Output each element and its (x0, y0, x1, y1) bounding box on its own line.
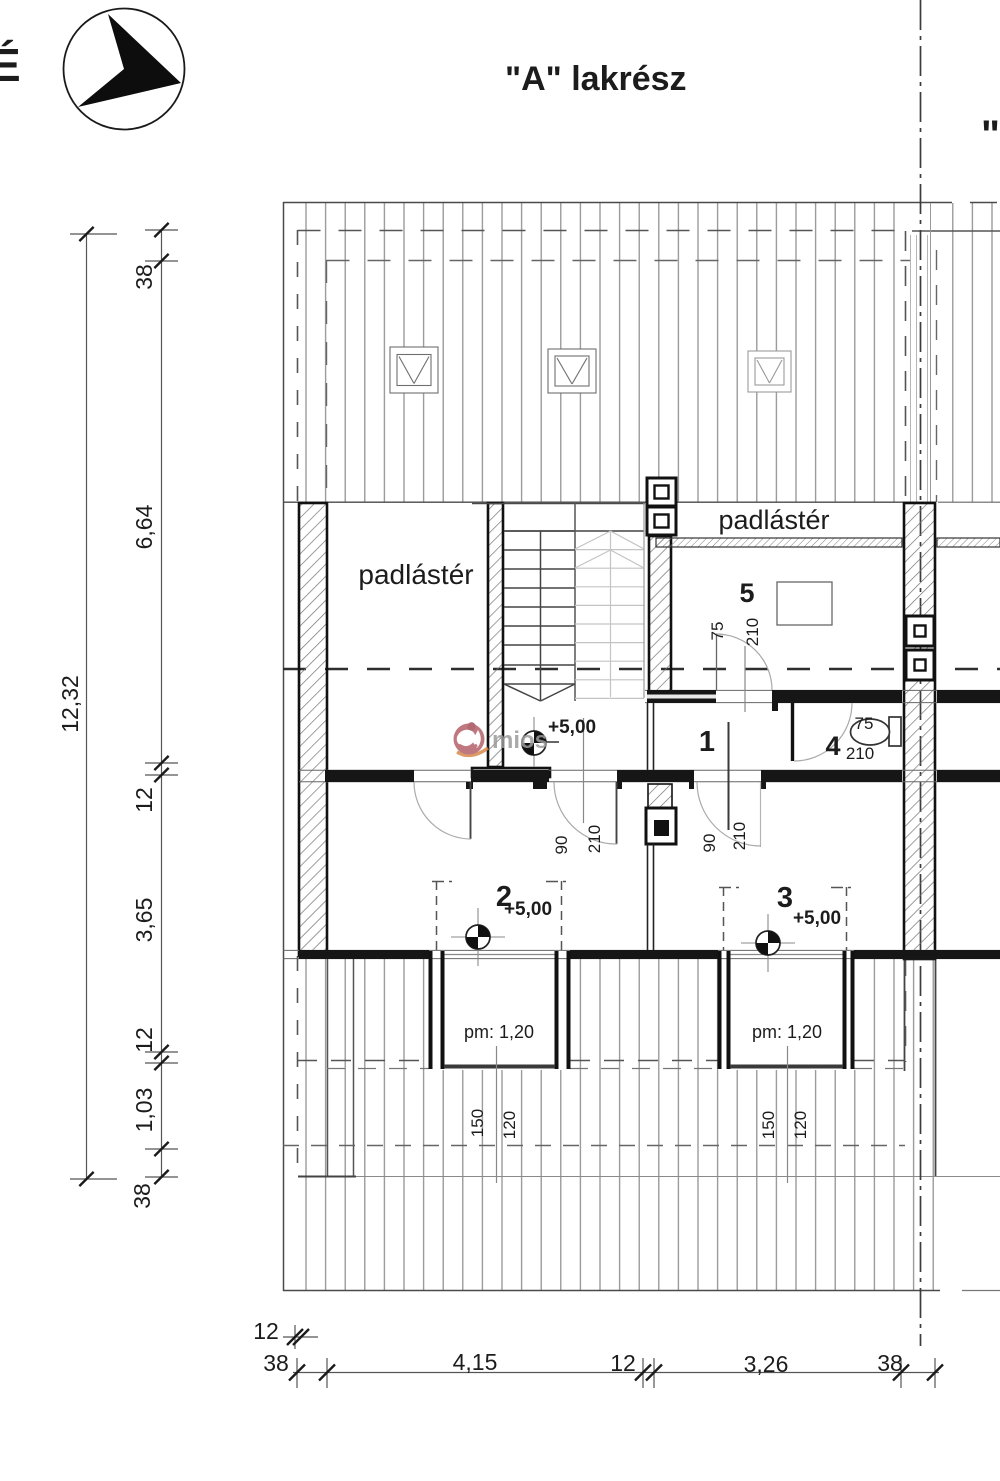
svg-text:3,26: 3,26 (744, 1351, 789, 1377)
svg-text:12: 12 (131, 1027, 157, 1053)
svg-text:75: 75 (708, 622, 727, 641)
svg-text:12: 12 (253, 1318, 279, 1344)
svg-text:38: 38 (263, 1350, 289, 1376)
svg-text:4,15: 4,15 (453, 1349, 498, 1375)
svg-text:pm: 1,20: pm: 1,20 (752, 1022, 822, 1042)
svg-text:1,03: 1,03 (131, 1088, 157, 1133)
svg-text:1: 1 (699, 726, 715, 758)
svg-text:+5,00: +5,00 (548, 717, 596, 738)
svg-text:5: 5 (739, 578, 754, 608)
svg-text:"A" lakrész: "A" lakrész (505, 60, 687, 98)
svg-text:": " (981, 113, 1000, 157)
svg-text:210: 210 (730, 822, 749, 850)
svg-text:12: 12 (610, 1350, 636, 1376)
svg-text:90: 90 (552, 836, 571, 855)
svg-text:12: 12 (131, 787, 157, 813)
svg-text:210: 210 (585, 825, 604, 853)
svg-text:90: 90 (700, 834, 719, 853)
svg-text:38: 38 (129, 1183, 155, 1209)
svg-text:+5,00: +5,00 (504, 899, 552, 920)
svg-text:pm: 1,20: pm: 1,20 (464, 1022, 534, 1042)
svg-text:padlástér: padlástér (358, 559, 473, 590)
svg-text:4: 4 (825, 731, 840, 761)
svg-text:210: 210 (846, 744, 874, 763)
svg-text:+5,00: +5,00 (793, 908, 841, 929)
svg-text:120: 120 (791, 1111, 810, 1139)
svg-text:padlástér: padlástér (718, 505, 829, 535)
svg-text:38: 38 (131, 264, 157, 290)
svg-text:150: 150 (468, 1109, 487, 1137)
svg-text:3,65: 3,65 (131, 898, 157, 943)
svg-text:120: 120 (500, 1111, 519, 1139)
svg-text:38: 38 (877, 1350, 903, 1376)
svg-text:mios: mios (492, 727, 548, 754)
svg-text:3: 3 (777, 882, 793, 914)
svg-text:É: É (0, 39, 21, 91)
svg-text:150: 150 (759, 1111, 778, 1139)
svg-text:75: 75 (855, 714, 874, 733)
svg-text:12,32: 12,32 (57, 675, 83, 733)
svg-text:6,64: 6,64 (131, 504, 157, 549)
svg-text:210: 210 (743, 618, 762, 646)
